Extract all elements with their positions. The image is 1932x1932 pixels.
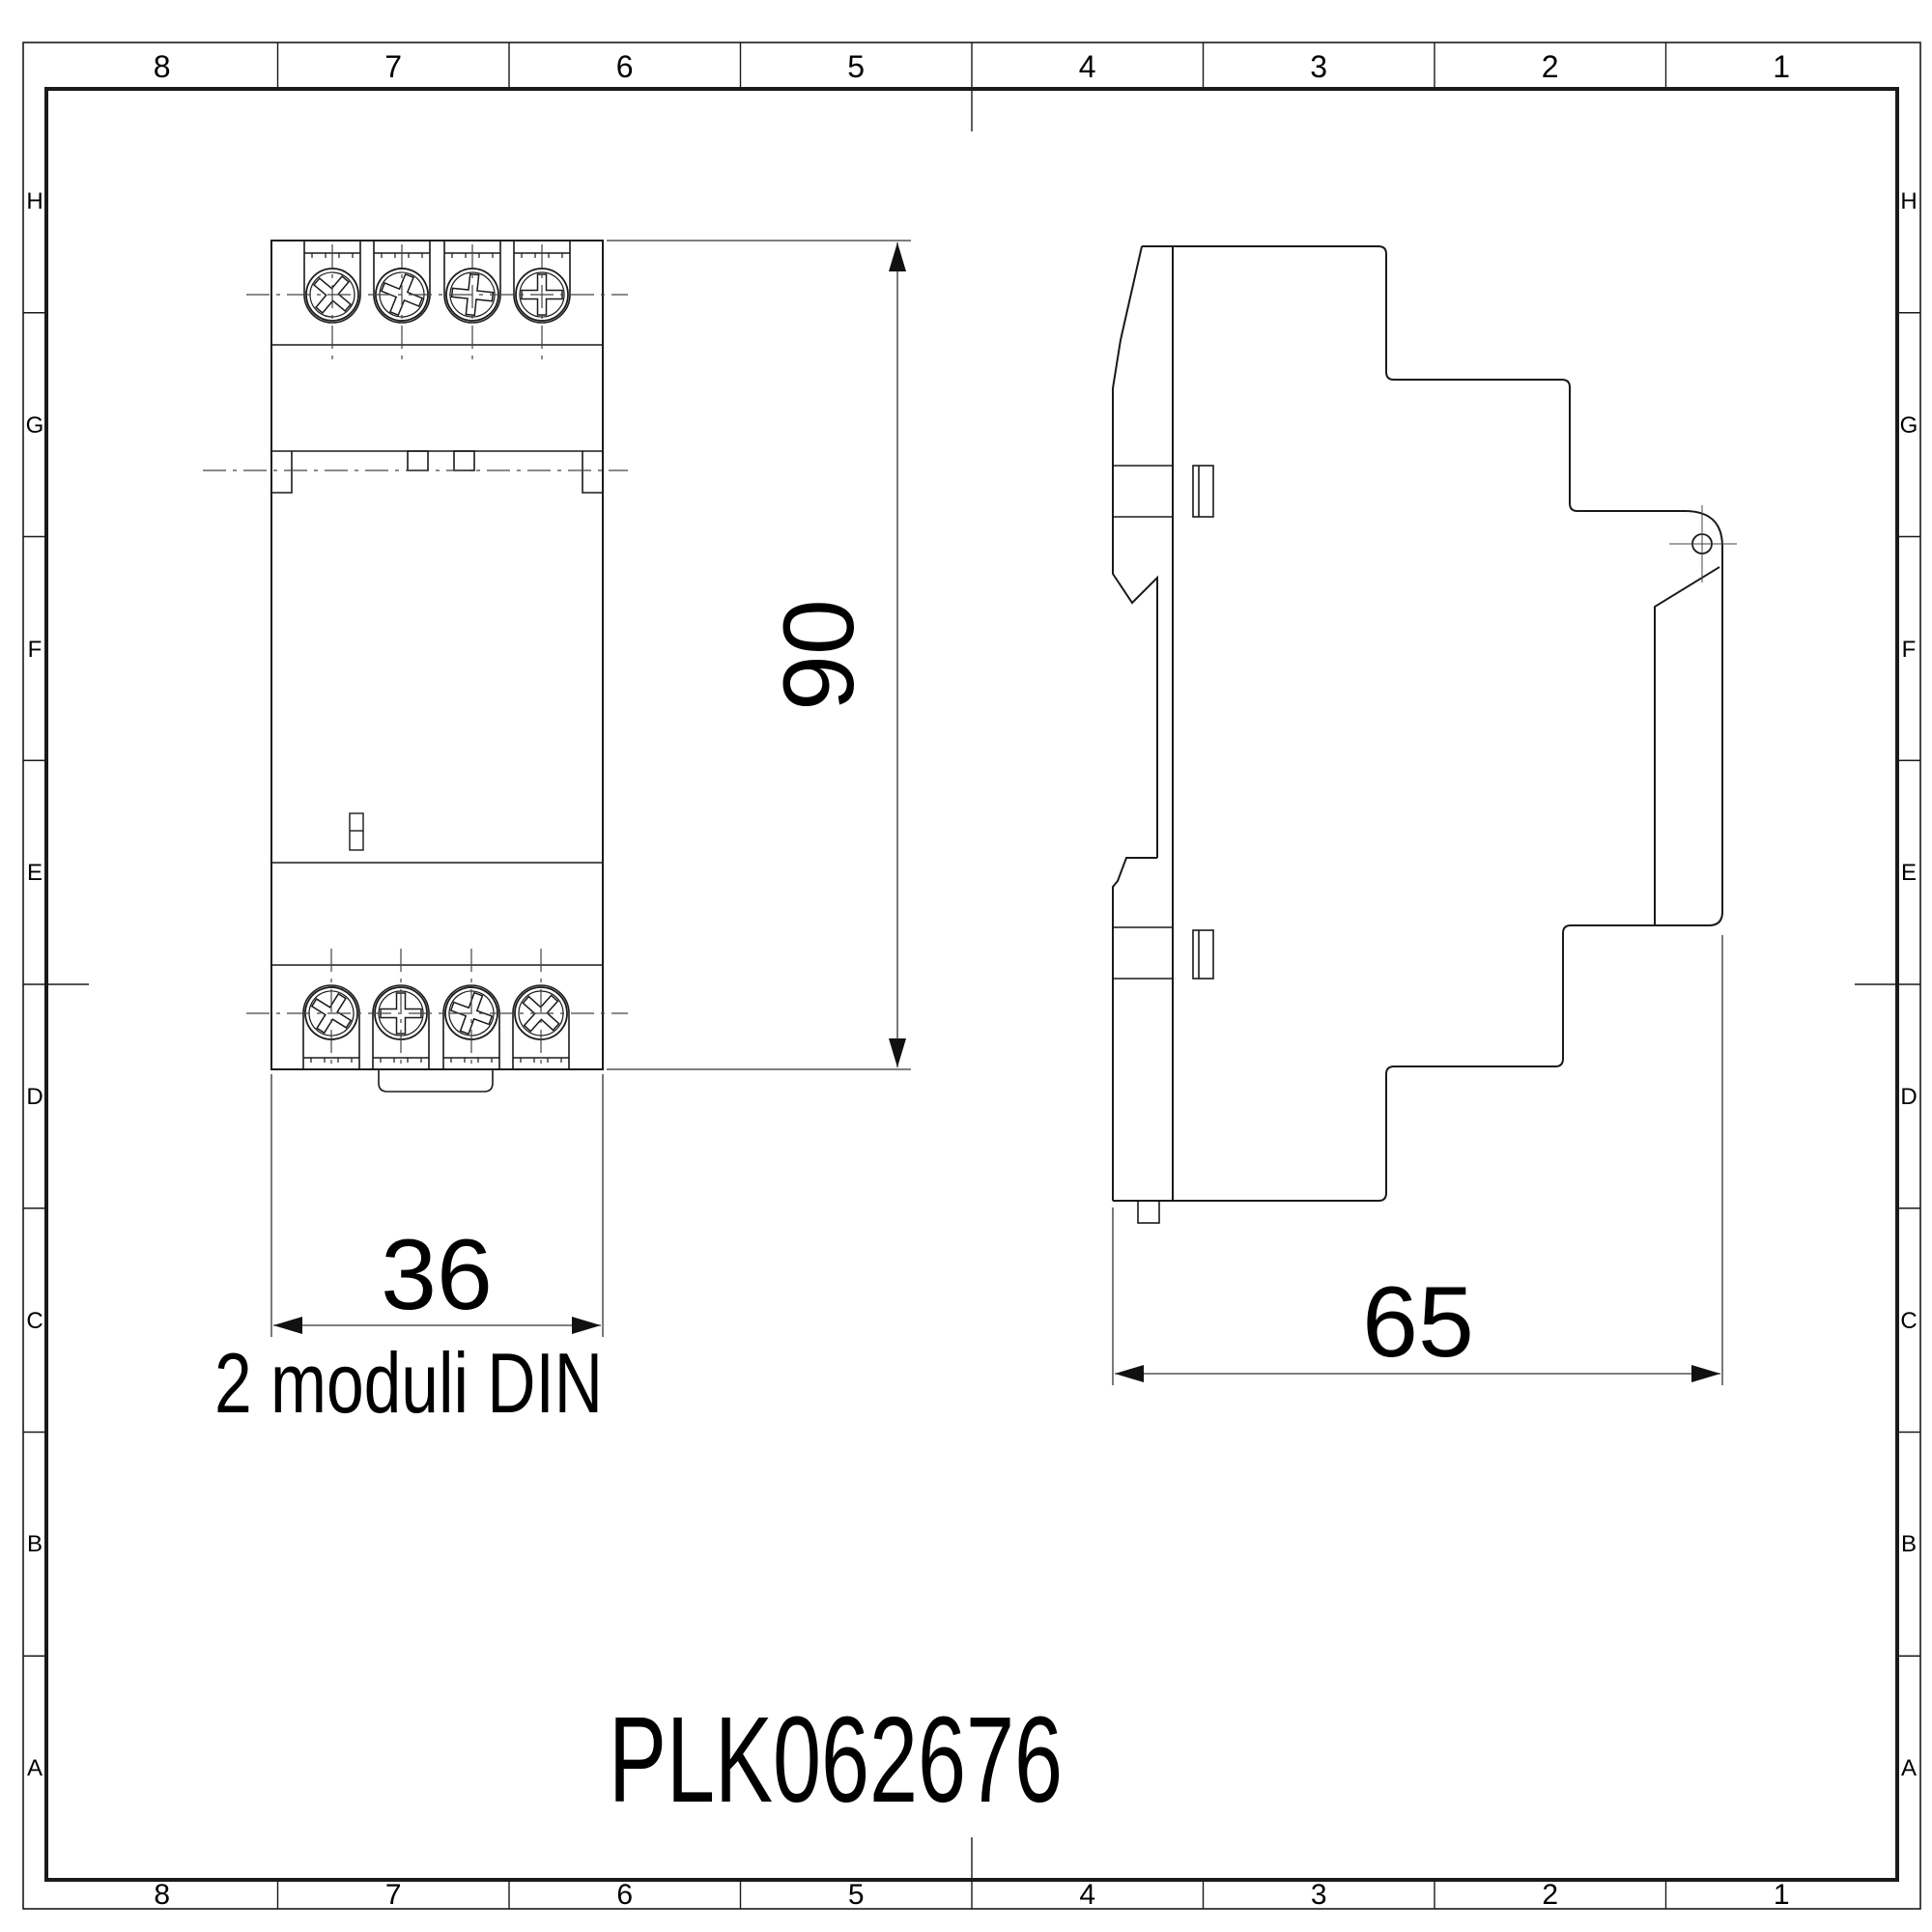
dim-height-value: 90 <box>763 599 875 711</box>
zone-col-label: 5 <box>848 1879 865 1911</box>
zone-col-label: 5 <box>847 49 865 84</box>
zone-row-label: G <box>1900 412 1918 439</box>
zone-row-label: F <box>28 637 43 663</box>
zone-col-label: 4 <box>1079 49 1096 84</box>
part-number: PLK062676 <box>609 1691 1063 1828</box>
zone-col-label: 1 <box>1774 1879 1790 1911</box>
zone-row-label: C <box>26 1308 43 1334</box>
zone-row-label: C <box>1900 1308 1917 1334</box>
zone-row-label: D <box>26 1084 43 1110</box>
din-clip-tab <box>379 1069 493 1092</box>
zone-col-label: 8 <box>154 1879 170 1911</box>
hook-hole <box>1669 505 1737 582</box>
side-view <box>1113 246 1737 1223</box>
zone-col-label: 8 <box>154 49 171 84</box>
zone-row-label: E <box>27 860 43 886</box>
zone-row-label: A <box>1901 1755 1917 1781</box>
dim-depth-value: 65 <box>1362 1266 1474 1378</box>
arrowhead-right-icon <box>572 1317 601 1334</box>
zone-row-label: B <box>1901 1531 1917 1557</box>
centre-lines-front <box>203 244 628 1065</box>
dimensions: 36 2 moduli DIN 90 65 <box>214 241 1722 1431</box>
zone-col-label: 3 <box>1311 1879 1327 1911</box>
zone-col-label: 7 <box>385 1879 402 1911</box>
dim-width-value: 36 <box>381 1219 493 1331</box>
dim-width-note: 2 moduli DIN <box>214 1335 603 1431</box>
zone-col-label: 2 <box>1542 49 1559 84</box>
zone-col-label: 1 <box>1773 49 1790 84</box>
terminal-pockets-bottom <box>303 985 569 1069</box>
arrowhead-up-icon <box>889 242 906 271</box>
drawing-sheet: 8 7 6 5 4 3 2 1 8 7 6 5 4 3 2 1 H G F E … <box>0 0 1932 1932</box>
sheet-frame: 8 7 6 5 4 3 2 1 8 7 6 5 4 3 2 1 H G F E … <box>23 43 1920 1911</box>
latch-blocks <box>1193 466 1213 979</box>
technical-drawing: 8 7 6 5 4 3 2 1 8 7 6 5 4 3 2 1 H G F E … <box>0 0 1932 1932</box>
zone-col-label: 2 <box>1542 1879 1558 1911</box>
arrowhead-right-icon <box>1691 1365 1720 1382</box>
zone-col-label: 7 <box>384 49 402 84</box>
zone-col-label: 3 <box>1310 49 1327 84</box>
zone-row-label: E <box>1901 860 1917 886</box>
arrowhead-left-icon <box>1115 1365 1144 1382</box>
indicator-window <box>350 813 363 850</box>
arrowhead-down-icon <box>889 1038 906 1067</box>
zone-row-label: B <box>27 1531 43 1557</box>
zone-row-label: G <box>26 412 44 439</box>
zone-ticks <box>23 43 1920 1909</box>
zone-row-label: H <box>1900 188 1917 214</box>
zone-row-label: F <box>1902 637 1917 663</box>
arrowhead-left-icon <box>273 1317 302 1334</box>
zone-row-label: D <box>1900 1084 1917 1110</box>
zone-row-label: A <box>27 1755 43 1781</box>
zone-col-label: 6 <box>616 49 634 84</box>
front-view <box>203 241 628 1092</box>
din-notches <box>271 451 603 493</box>
zone-row-label: H <box>26 188 43 214</box>
clip-foot <box>1138 1201 1159 1223</box>
zone-col-label: 6 <box>616 1879 633 1911</box>
zone-col-label: 4 <box>1079 1879 1095 1911</box>
